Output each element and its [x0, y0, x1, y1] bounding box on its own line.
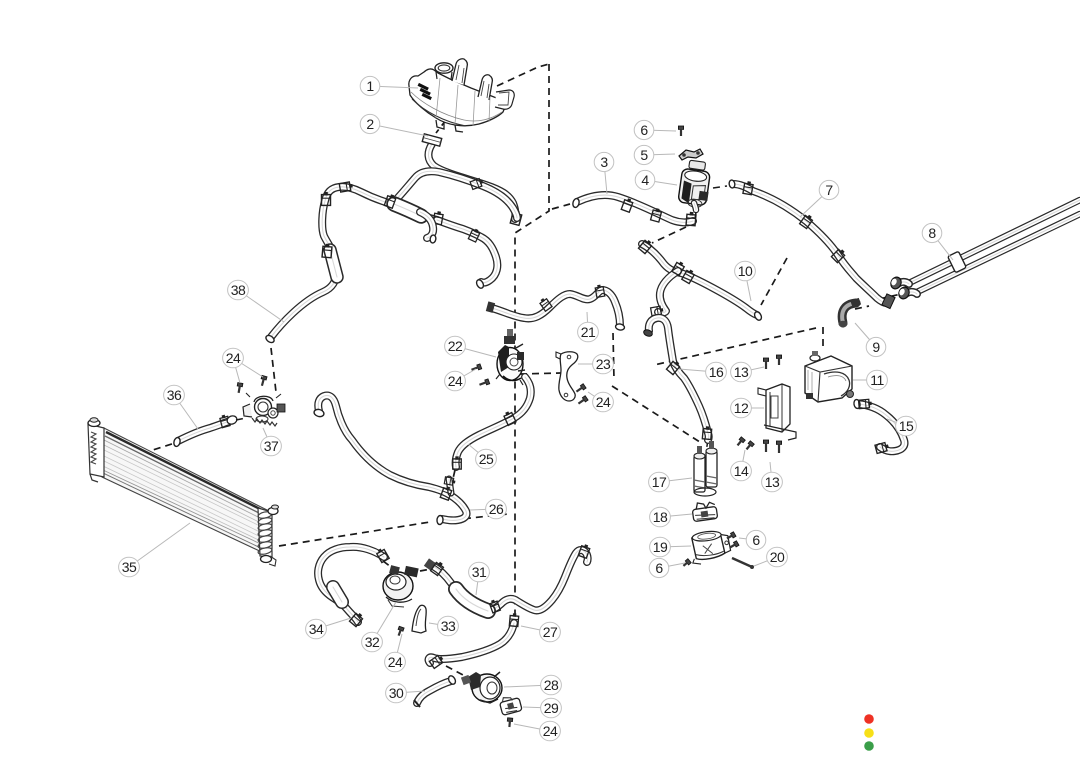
svg-text:6: 6 [752, 532, 760, 548]
svg-text:21: 21 [581, 324, 596, 340]
svg-text:18: 18 [653, 509, 668, 525]
svg-text:17: 17 [652, 474, 667, 490]
svg-text:22: 22 [448, 338, 463, 354]
svg-text:1: 1 [366, 78, 374, 94]
svg-text:38: 38 [231, 282, 246, 298]
svg-text:13: 13 [765, 474, 780, 490]
svg-text:27: 27 [543, 624, 558, 640]
svg-text:19: 19 [653, 539, 668, 555]
svg-text:5: 5 [640, 147, 648, 163]
svg-text:31: 31 [472, 564, 487, 580]
svg-text:14: 14 [734, 463, 749, 479]
svg-text:34: 34 [309, 621, 324, 637]
svg-text:13: 13 [734, 364, 749, 380]
svg-text:35: 35 [122, 559, 137, 575]
svg-text:6: 6 [655, 560, 663, 576]
svg-text:24: 24 [448, 373, 463, 389]
svg-text:23: 23 [596, 356, 611, 372]
svg-text:3: 3 [600, 154, 608, 170]
svg-text:2: 2 [366, 116, 374, 132]
svg-text:6: 6 [640, 122, 648, 138]
svg-text:15: 15 [899, 418, 914, 434]
svg-text:28: 28 [544, 677, 559, 693]
svg-text:36: 36 [167, 387, 182, 403]
svg-text:7: 7 [825, 182, 833, 198]
svg-text:24: 24 [226, 350, 241, 366]
svg-text:32: 32 [365, 634, 380, 650]
svg-text:29: 29 [544, 700, 559, 716]
svg-text:24: 24 [543, 723, 558, 739]
svg-text:37: 37 [264, 438, 279, 454]
svg-text:30: 30 [389, 685, 404, 701]
svg-text:25: 25 [479, 451, 494, 467]
svg-text:26: 26 [489, 501, 504, 517]
svg-text:20: 20 [770, 549, 785, 565]
svg-text:12: 12 [734, 400, 749, 416]
svg-text:16: 16 [709, 364, 724, 380]
svg-text:11: 11 [870, 372, 884, 388]
svg-text:10: 10 [738, 263, 753, 279]
svg-text:33: 33 [441, 618, 456, 634]
svg-text:9: 9 [872, 339, 880, 355]
svg-text:4: 4 [641, 172, 649, 188]
svg-text:8: 8 [928, 225, 936, 241]
svg-text:24: 24 [596, 394, 611, 410]
svg-text:24: 24 [388, 654, 403, 670]
